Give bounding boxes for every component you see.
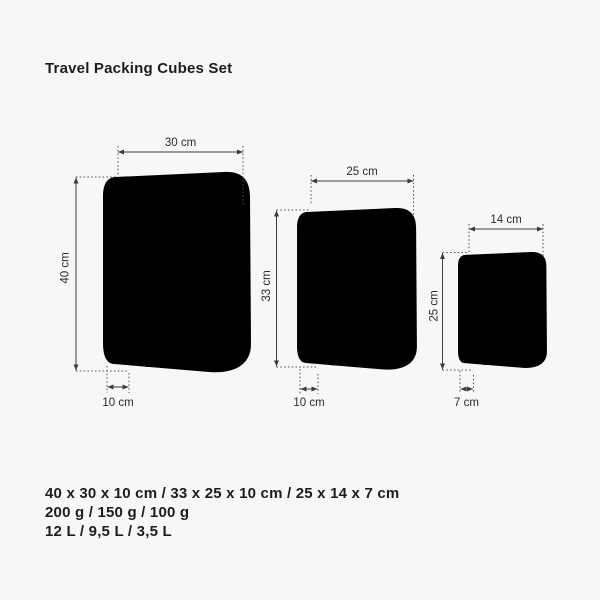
cube-large-illustration bbox=[103, 172, 251, 372]
product-specs: 40 x 30 x 10 cm / 33 x 25 x 10 cm / 25 x… bbox=[45, 484, 399, 541]
width-label: 30 cm bbox=[165, 137, 196, 149]
depth-label: 7 cm bbox=[454, 397, 479, 409]
cube-medium-illustration bbox=[297, 208, 417, 370]
height-label: 40 cm bbox=[60, 252, 72, 283]
product-dimension-diagram: Travel Packing Cubes Set 30 cm bbox=[0, 0, 600, 600]
height-label: 25 cm bbox=[429, 290, 441, 321]
spec-volumes: 12 L / 9,5 L / 3,5 L bbox=[45, 522, 399, 541]
depth-label: 10 cm bbox=[293, 397, 324, 409]
packing-cube-medium: 25 cm 33 cm 10 cm bbox=[261, 166, 417, 409]
packing-cube-large: 30 cm 40 cm 10 cm bbox=[60, 137, 252, 409]
packing-cube-small: 14 cm 25 cm 7 cm bbox=[429, 214, 547, 409]
width-label: 14 cm bbox=[490, 214, 521, 226]
width-label: 25 cm bbox=[346, 166, 377, 178]
spec-weights: 200 g / 150 g / 100 g bbox=[45, 503, 399, 522]
spec-dimensions: 40 x 30 x 10 cm / 33 x 25 x 10 cm / 25 x… bbox=[45, 484, 399, 503]
height-label: 33 cm bbox=[261, 270, 273, 301]
cube-small-illustration bbox=[458, 252, 547, 368]
depth-label: 10 cm bbox=[102, 397, 133, 409]
